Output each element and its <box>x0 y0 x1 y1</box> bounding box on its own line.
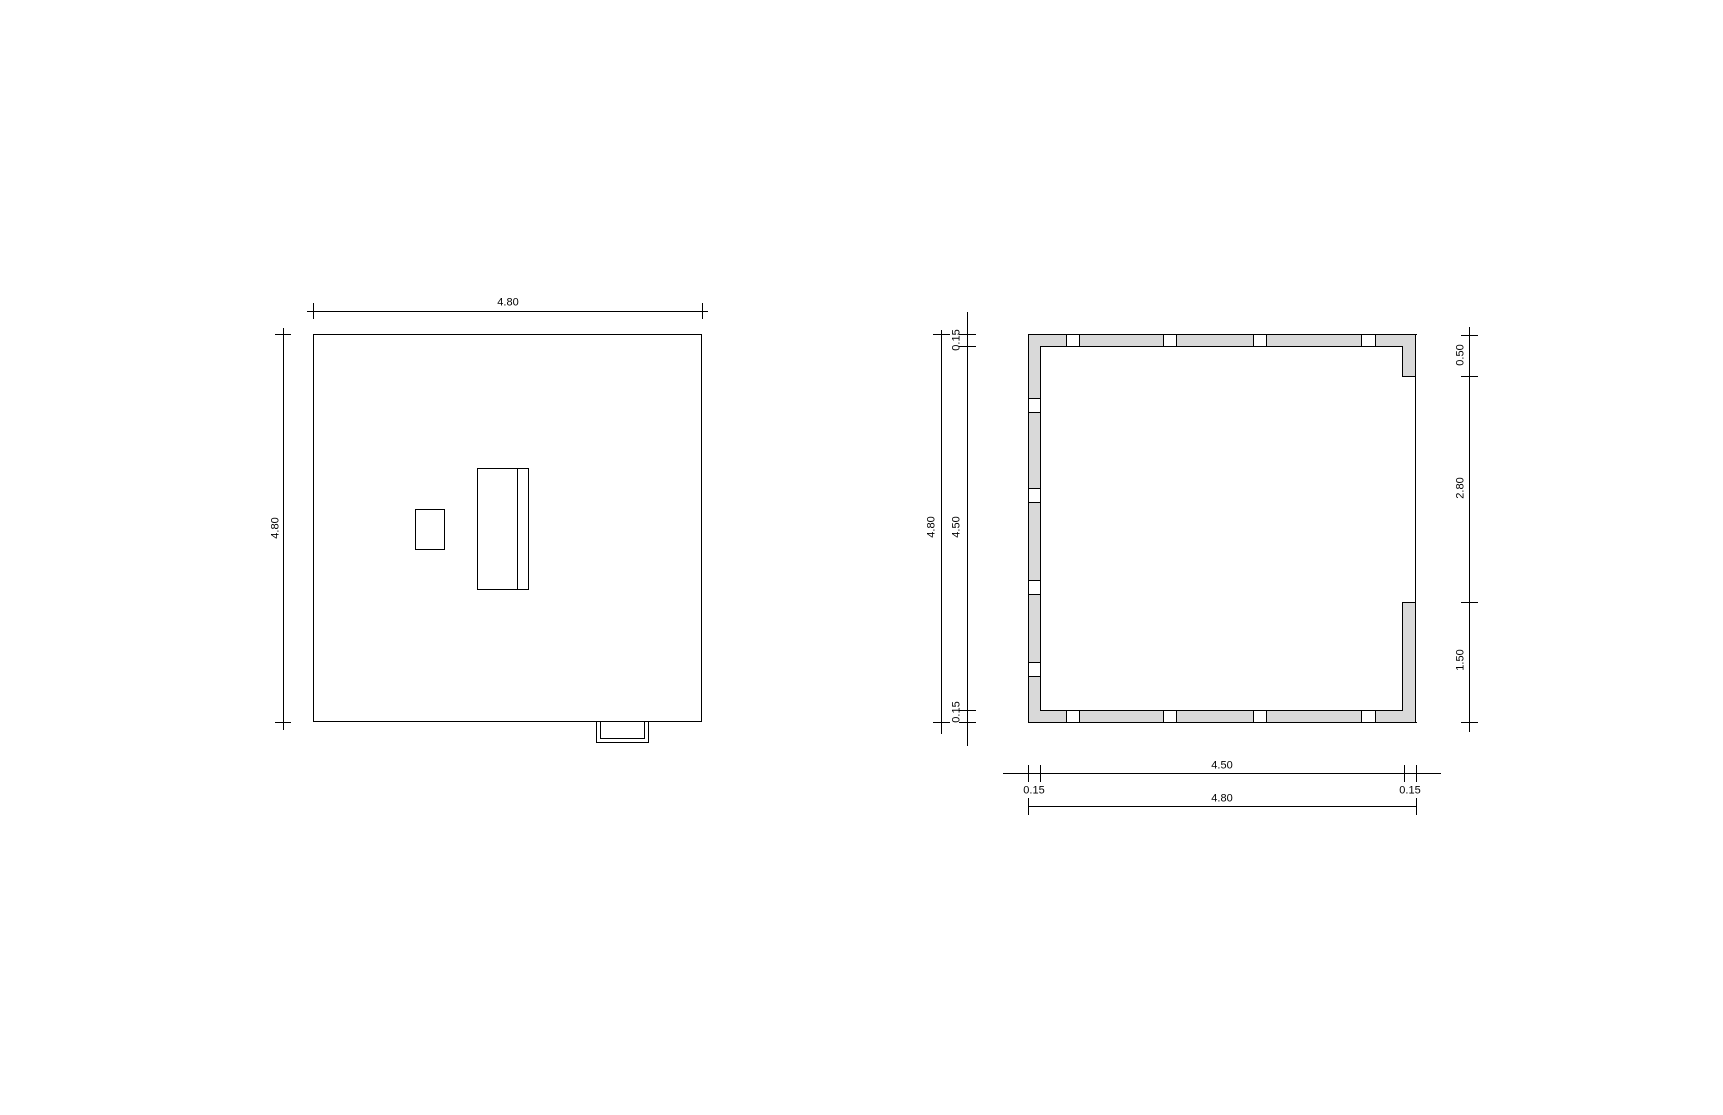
plan-dim-label-left-offset-top: 0.15 <box>952 329 963 350</box>
plan-opening-cap-bottom <box>1402 602 1416 603</box>
plan-opening-cap-top <box>1402 376 1416 377</box>
plan-dim-bottom-chain-line <box>1003 773 1441 774</box>
plan-dim-right-tick-3 <box>1461 602 1478 603</box>
plan-outer-edge-bottom <box>1028 722 1417 723</box>
roof-dim-left-line <box>283 328 284 730</box>
plan-post-left-4 <box>1029 662 1040 677</box>
plan-dim-left-outer-line <box>941 330 942 734</box>
plan-post-top-3 <box>1253 335 1267 346</box>
plan-dim-left-outer-tick-top <box>933 334 950 335</box>
plan-post-left-1 <box>1029 398 1040 413</box>
plan-dim-label-left-total: 4.80 <box>927 516 938 537</box>
plan-dim-label-bottom-inner: 4.50 <box>1211 761 1232 772</box>
plan-dim-label-bottom-offset-left: 0.15 <box>1023 786 1044 797</box>
roof-dim-top-label: 4.80 <box>497 298 518 309</box>
plan-dim-bottom-total-line <box>1028 806 1417 807</box>
roof-skylight <box>415 509 445 550</box>
plan-dim-left-inner-line <box>967 312 968 746</box>
plan-dim-label-right-bottom: 1.50 <box>1456 649 1467 670</box>
plan-dim-right-tick-2 <box>1461 376 1478 377</box>
plan-dim-label-left-offset-bottom: 0.15 <box>952 701 963 722</box>
plan-dim-label-right-top: 0.50 <box>1456 344 1467 365</box>
plan-post-left-3 <box>1029 580 1040 595</box>
plan-dim-right-tick-1 <box>1461 335 1478 336</box>
roof-chimney <box>477 468 529 590</box>
roof-dim-top-tick-left <box>313 303 314 319</box>
roof-dim-left-label: 4.80 <box>271 517 282 538</box>
plan-post-bottom-4 <box>1361 711 1376 722</box>
plan-outer-edge-left <box>1028 334 1029 723</box>
plan-post-bottom-2 <box>1163 711 1177 722</box>
plan-post-bottom-3 <box>1253 711 1267 722</box>
plan-post-top-4 <box>1361 335 1376 346</box>
roof-dim-left-tick-bottom <box>275 722 291 723</box>
plan-inner-edge-right-upper <box>1402 346 1403 376</box>
plan-dim-left-outer-tick-bottom <box>933 722 950 723</box>
plan-post-left-2 <box>1029 488 1040 503</box>
plan-dim-right-line <box>1469 327 1470 732</box>
plan-outer-edge-right <box>1415 334 1416 723</box>
plan-dim-bottom-chain-tick-4 <box>1416 765 1417 782</box>
plan-dim-bottom-chain-tick-3 <box>1404 765 1405 782</box>
plan-inner-edge-left <box>1040 346 1041 711</box>
plan-dim-bottom-chain-tick-1 <box>1028 765 1029 782</box>
plan-inner-edge-right-lower <box>1402 602 1403 711</box>
roof-chimney-divider <box>517 468 518 589</box>
roof-step-inner <box>600 722 645 739</box>
plan-dim-bottom-total-tick-left <box>1028 798 1029 815</box>
plan-dim-right-tick-4 <box>1461 722 1478 723</box>
plan-dim-label-right-middle: 2.80 <box>1456 477 1467 498</box>
plan-outer-edge-top <box>1028 334 1417 335</box>
plan-post-top-2 <box>1163 335 1177 346</box>
roof-dim-top-tick-right <box>702 303 703 319</box>
plan-post-top-1 <box>1066 335 1080 346</box>
roof-dim-left-tick-top <box>275 334 291 335</box>
architectural-drawing: 4.80 4.80 <box>0 0 1723 1115</box>
plan-dim-label-bottom-total: 4.80 <box>1211 794 1232 805</box>
plan-dim-bottom-chain-tick-2 <box>1040 765 1041 782</box>
plan-inner-edge-top <box>1040 346 1403 347</box>
plan-dim-label-left-inner: 4.50 <box>952 516 963 537</box>
plan-inner-edge-bottom <box>1040 710 1403 711</box>
plan-dim-bottom-total-tick-right <box>1416 798 1417 815</box>
plan-post-bottom-1 <box>1066 711 1080 722</box>
plan-dim-label-bottom-offset-right: 0.15 <box>1399 786 1420 797</box>
roof-dim-top-line <box>307 311 708 312</box>
